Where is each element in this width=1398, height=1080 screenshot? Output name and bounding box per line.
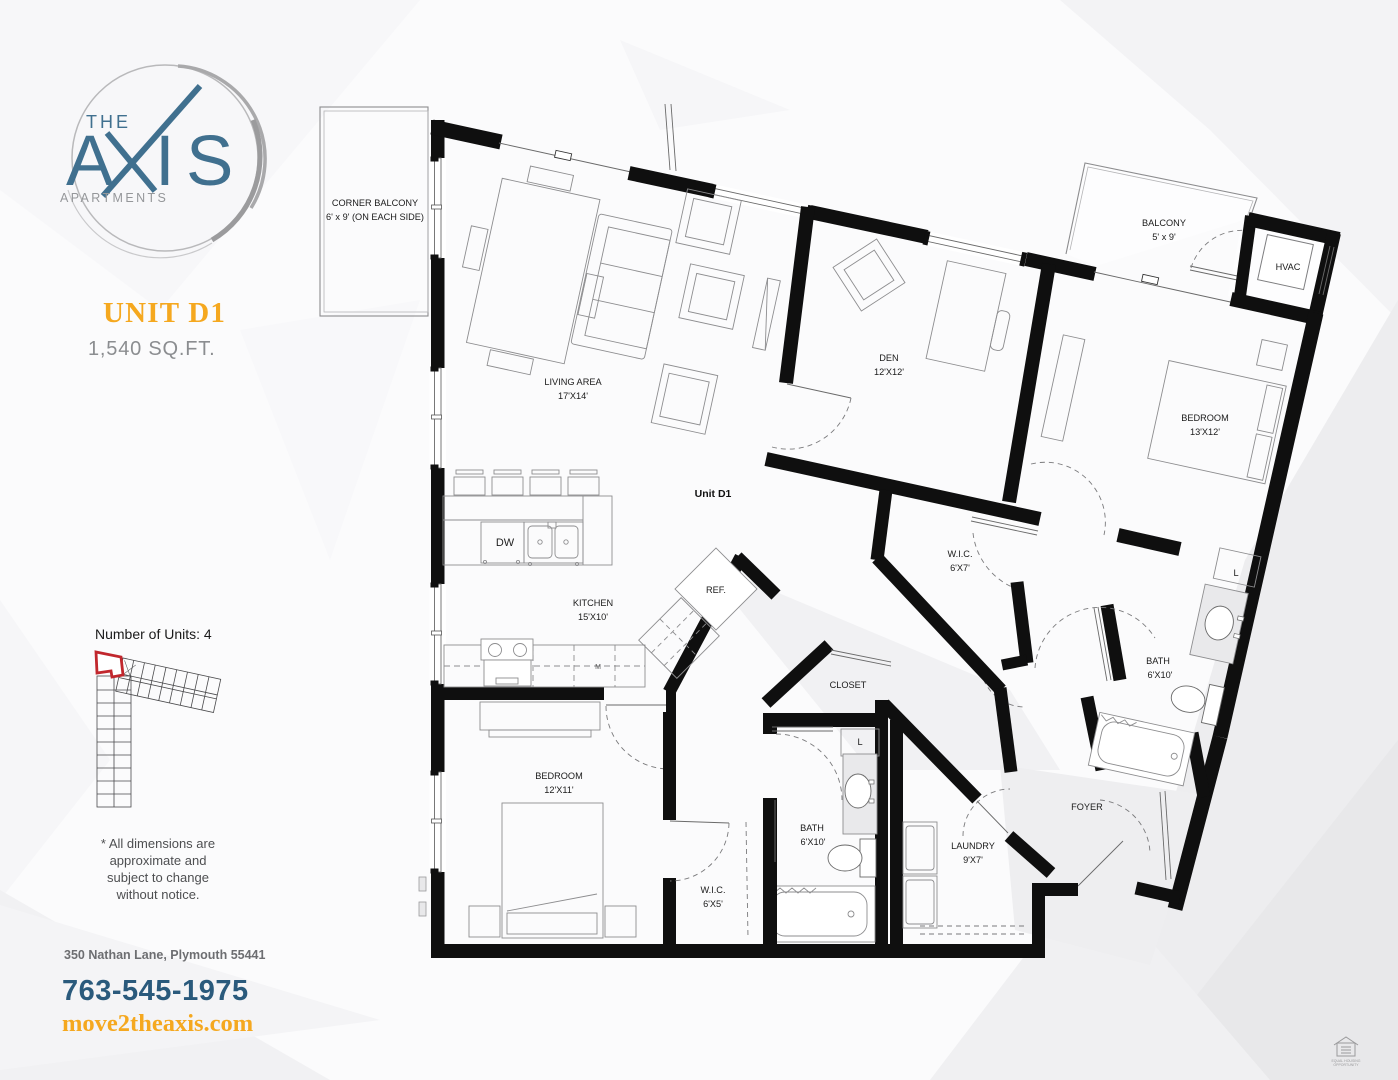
svg-text:UNIT D1: UNIT D1 [103,297,226,329]
svg-text:L: L [1233,568,1238,578]
svg-text:L: L [857,737,862,747]
svg-text:without notice.: without notice. [115,887,199,902]
svg-text:OPPORTUNITY: OPPORTUNITY [1333,1063,1359,1067]
svg-text:Unit D1: Unit D1 [695,488,732,500]
svg-text:5' x 9': 5' x 9' [1152,232,1176,242]
svg-text:13'X12': 13'X12' [1190,427,1220,437]
svg-text:approximate and: approximate and [110,853,207,868]
svg-text:BEDROOM: BEDROOM [1181,413,1228,423]
svg-text:* All dimensions are: * All dimensions are [101,836,215,851]
svg-text:6'X10': 6'X10' [1148,670,1173,680]
svg-text:DEN: DEN [879,353,898,363]
svg-text:9'X7': 9'X7' [963,855,983,865]
svg-text:763-545-1975: 763-545-1975 [62,975,249,1007]
svg-text:12'X12': 12'X12' [874,367,904,377]
svg-text:BEDROOM: BEDROOM [535,771,582,781]
svg-text:6'X5': 6'X5' [703,899,723,909]
svg-text:W.I.C.: W.I.C. [700,885,725,895]
svg-text:move2theaxis.com: move2theaxis.com [62,1010,253,1037]
svg-text:15'X10': 15'X10' [578,612,608,622]
svg-text:BATH: BATH [800,823,824,833]
svg-text:APARTMENTS: APARTMENTS [60,191,168,205]
svg-text:6' x 9' (ON EACH SIDE): 6' x 9' (ON EACH SIDE) [326,212,424,222]
svg-text:REF.: REF. [706,585,726,595]
svg-text:S: S [186,122,233,201]
svg-text:12'X11': 12'X11' [544,785,574,795]
svg-text:6'X10': 6'X10' [801,837,826,847]
svg-text:Number of Units: 4: Number of Units: 4 [95,626,212,642]
svg-text:CORNER BALCONY: CORNER BALCONY [332,198,418,208]
svg-text:6'X7': 6'X7' [950,563,970,573]
svg-text:subject to change: subject to change [107,870,209,885]
svg-text:LIVING AREA: LIVING AREA [544,377,602,387]
svg-text:W.I.C.: W.I.C. [947,549,972,559]
svg-text:LAUNDRY: LAUNDRY [951,841,995,851]
svg-text:FOYER: FOYER [1071,802,1103,812]
svg-text:17'X14': 17'X14' [558,391,588,401]
svg-text:350 Nathan Lane, Plymouth 5544: 350 Nathan Lane, Plymouth 55441 [64,948,266,962]
svg-text:1,540 SQ.FT.: 1,540 SQ.FT. [88,338,215,360]
svg-text:KITCHEN: KITCHEN [573,598,613,608]
svg-text:HVAC: HVAC [1276,262,1301,272]
svg-text:BALCONY: BALCONY [1142,218,1186,228]
svg-text:CLOSET: CLOSET [830,680,867,690]
svg-text:DW: DW [496,537,515,549]
svg-text:M: M [595,664,601,671]
svg-text:BATH: BATH [1146,656,1170,666]
